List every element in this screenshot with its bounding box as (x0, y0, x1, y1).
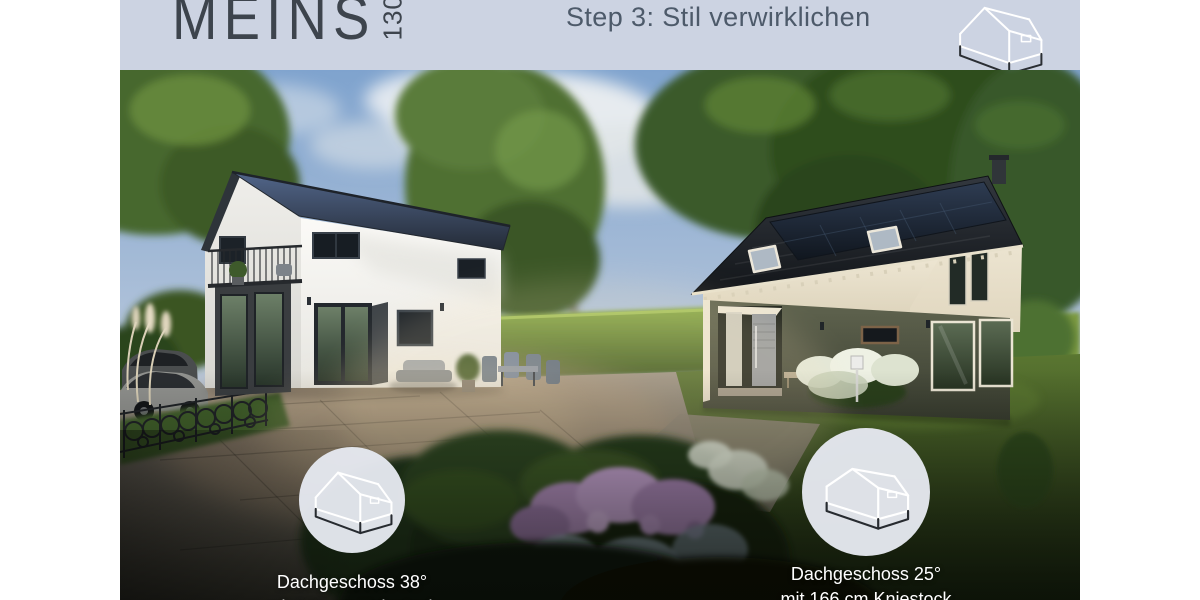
brand-variant-wrap: 130 (370, 0, 416, 46)
option-label-roof-25[interactable]: Dachgeschoss 25° mit 166 cm Kniestock (716, 562, 1016, 600)
brand-variant: 130 (378, 0, 409, 41)
option-subtitle: mit 166 cm Kniestock (716, 587, 1016, 600)
house-roof-38-icon (310, 464, 394, 536)
scene-illustration (120, 70, 1080, 600)
step-title: Step 3: Stil verwirklichen (566, 2, 871, 33)
header-bar: MEINS 130 Step 3: Stil verwirklichen (120, 0, 1080, 70)
option-badge-roof-38[interactable] (299, 447, 405, 553)
hero-photo: Dachgeschoss 38° mit 100 cm Kniestock Da… (120, 70, 1080, 600)
house-outline-icon (954, 0, 1046, 70)
option-title: Dachgeschoss 25° (716, 562, 1016, 587)
option-badge-roof-25[interactable] (802, 428, 930, 556)
option-subtitle: mit 100 cm Kniestock (202, 595, 502, 600)
option-title: Dachgeschoss 38° (202, 570, 502, 595)
house-roof-25-icon (821, 454, 911, 530)
option-label-roof-38[interactable]: Dachgeschoss 38° mit 100 cm Kniestock (202, 570, 502, 600)
brand-logo: MEINS (172, 0, 376, 50)
